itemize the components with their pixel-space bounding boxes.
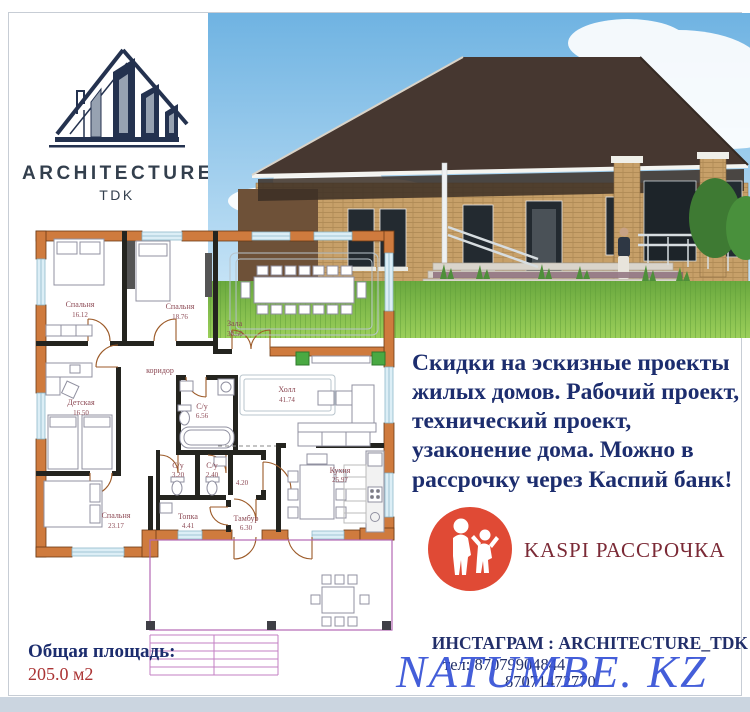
flyer: ARCHITECTURE TDK [0,0,750,712]
promo-text: Скидки на эскизные проекты жилых домов. … [412,349,750,495]
kaspi-people-icon [428,507,512,591]
room-area: 6.56 [196,412,209,420]
promo-line: рассрочку через Каспий банк! [412,466,750,495]
room-label: Топка [178,512,198,521]
entrance-door [532,209,556,269]
room-label: Тамбур [233,514,258,523]
room-label: Зала [227,319,243,328]
brand-logo: ARCHITECTURE TDK [22,34,212,203]
room-area: 4.20 [236,479,249,487]
room-area: 3.20 [172,471,185,479]
room-label: С/у [172,461,184,470]
room-label: Холл [278,385,295,394]
floor-plan: Спальня 16.12 Спальня 18.76 Зала 38.50 Д… [30,225,400,685]
logo-house-icon [37,34,197,152]
promo-line: Скидки на эскизные проекты [412,349,750,378]
room-area: 16.12 [72,311,88,319]
total-area-value: 205.0 м2 [28,664,93,685]
room-area: 25.97 [332,476,348,484]
room-label: коридор [146,366,174,375]
room-area: 2.40 [206,471,219,479]
room-label: С/у [206,461,218,470]
room-label: Спальня [166,302,195,311]
room-area: 4.41 [182,522,195,530]
promo-line: жилых домов. Рабочий проект, [412,378,750,407]
room-area: 16.50 [73,409,89,417]
room-area: 23.17 [108,522,124,530]
room-area: 38.50 [227,330,243,338]
room-label: Детская [67,398,95,407]
room-area: 6.30 [240,524,253,532]
promo-line: технический проект, [412,407,750,436]
room-label: С/у [196,402,208,411]
total-area-label: Общая площадь: [28,641,175,663]
plan-terrace [146,540,392,675]
room-label: Спальня [66,300,95,309]
brand-name: ARCHITECTURE [22,163,212,185]
room-area: 41.74 [279,396,295,404]
brand-subtitle: TDK [22,187,212,203]
promo-line: узаконение дома. Можно в [412,436,750,465]
bottom-strip [0,697,750,712]
kaspi-label: KASPI РАССРОЧКА [524,538,725,563]
room-area: 18.76 [172,313,188,321]
room-label: Кухня [330,466,351,475]
room-label: Спальня [102,511,131,520]
watermark: NATUMBE. KZ [396,645,708,698]
